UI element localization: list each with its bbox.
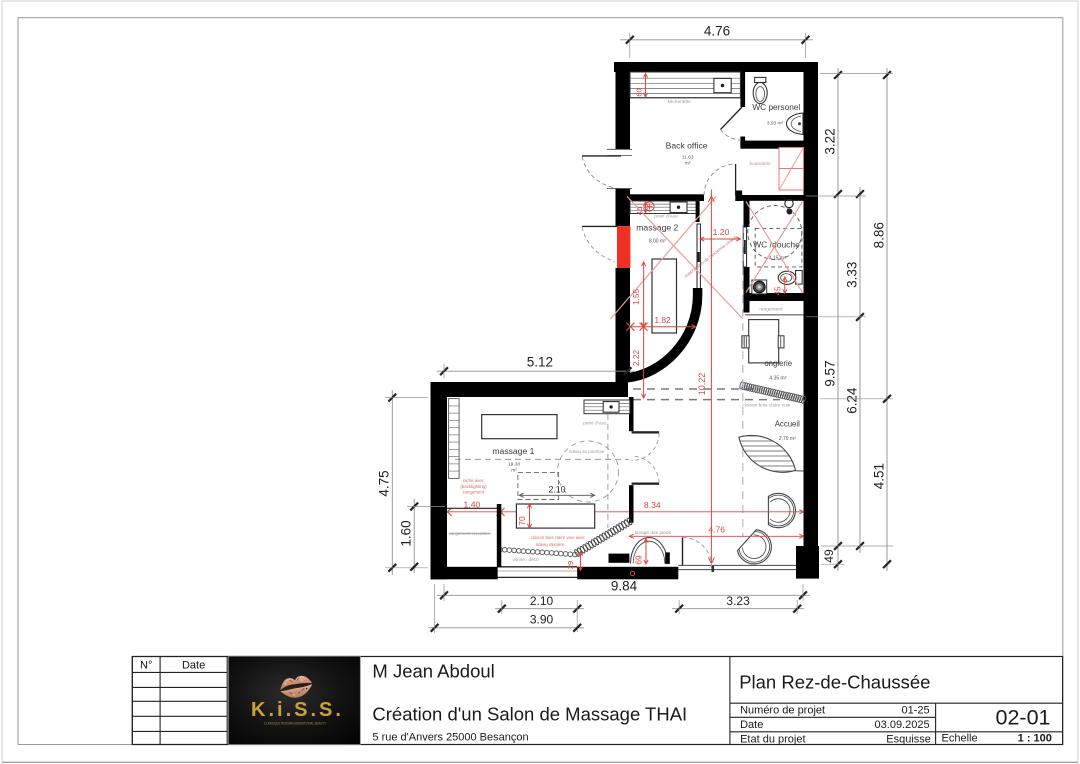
svg-text:WC /douche: WC /douche xyxy=(753,240,800,250)
svg-text:4.35 m²: 4.35 m² xyxy=(769,376,786,382)
svg-text:point d'eau: point d'eau xyxy=(583,420,607,426)
svg-text:rideau derrière: rideau derrière xyxy=(536,542,565,547)
svg-text:11.63: 11.63 xyxy=(682,155,694,161)
svg-text:kitchenette: kitchenette xyxy=(668,99,692,105)
svg-text:Etat du projet: Etat du projet xyxy=(740,733,805,745)
svg-text:6.24: 6.24 xyxy=(845,387,860,414)
svg-text:10.22: 10.22 xyxy=(697,373,707,396)
svg-text:19.38: 19.38 xyxy=(508,462,520,468)
svg-text:5.12: 5.12 xyxy=(527,355,553,370)
svg-text:02-01: 02-01 xyxy=(996,706,1051,730)
svg-text:M Jean Abdoul: M Jean Abdoul xyxy=(372,661,494,682)
svg-text:4.15 m²: 4.15 m² xyxy=(769,256,786,262)
svg-text:onglerie: onglerie xyxy=(764,359,792,368)
svg-text:Accueil: Accueil xyxy=(775,419,800,428)
svg-text:massage 2: massage 2 xyxy=(636,222,678,232)
svg-text:cloison bois claire voie: cloison bois claire voie xyxy=(742,402,790,408)
svg-text:3.23: 3.23 xyxy=(726,594,750,608)
svg-text:8.00 m²: 8.00 m² xyxy=(649,239,666,245)
svg-text:cloison bois claire voie avec: cloison bois claire voie avec xyxy=(531,535,586,540)
svg-text:49: 49 xyxy=(822,549,836,563)
svg-text:Date: Date xyxy=(182,660,205,672)
svg-text:8.34: 8.34 xyxy=(644,500,661,510)
svg-text:3.90: 3.90 xyxy=(530,613,554,627)
svg-text:massage 1: massage 1 xyxy=(492,446,534,456)
svg-text:9.57: 9.57 xyxy=(823,360,838,386)
svg-text:m²: m² xyxy=(511,468,517,474)
svg-text:point d'eau: point d'eau xyxy=(654,213,678,219)
svg-text:2.79 m²: 2.79 m² xyxy=(779,436,796,442)
svg-text:1.82: 1.82 xyxy=(654,315,671,325)
svg-text:45: 45 xyxy=(774,286,783,295)
svg-text:CLASSIQUE RUSSIAN SENSATIONAL: CLASSIQUE RUSSIAN SENSATIONAL BEAUTY xyxy=(264,721,327,725)
svg-text:N°: N° xyxy=(140,660,152,672)
svg-text:Numéro de projet: Numéro de projet xyxy=(740,705,825,717)
svg-text:40: 40 xyxy=(635,207,644,215)
svg-text:rideau au pourtour: rideau au pourtour xyxy=(569,449,605,454)
svg-text:m²: m² xyxy=(685,161,691,167)
svg-text:lavage des pieds: lavage des pieds xyxy=(635,530,672,536)
svg-text:rangement: rangement xyxy=(759,307,783,313)
svg-text:buanderie: buanderie xyxy=(750,161,772,167)
svg-text:Echelle: Echelle xyxy=(942,733,978,745)
svg-text:1 : 100: 1 : 100 xyxy=(1018,733,1052,745)
svg-text:Date: Date xyxy=(740,719,763,731)
svg-text:4.75: 4.75 xyxy=(377,470,392,496)
svg-text:29: 29 xyxy=(566,561,575,569)
svg-text:WC personel: WC personel xyxy=(752,102,800,112)
svg-text:3.93 m²: 3.93 m² xyxy=(767,121,784,127)
svg-text:5 rue d'Anvers 25000 Besançon: 5 rue d'Anvers 25000 Besançon xyxy=(372,732,528,744)
svg-text:3.33: 3.33 xyxy=(845,262,860,288)
svg-text:niche avec: niche avec xyxy=(463,478,485,483)
svg-text:1.60: 1.60 xyxy=(399,520,414,546)
svg-text:03.09.2025: 03.09.2025 xyxy=(875,719,930,731)
svg-text:01-25: 01-25 xyxy=(901,705,929,717)
svg-text:Création d'un Salon de Massage: Création d'un Salon de Massage THAI xyxy=(372,704,687,725)
svg-text:9.84: 9.84 xyxy=(611,579,638,594)
svg-text:4.51: 4.51 xyxy=(872,463,887,489)
svg-text:70: 70 xyxy=(517,516,527,526)
svg-text:Plan Rez-de-Chaussée: Plan Rez-de-Chaussée xyxy=(739,672,930,693)
svg-text:(backlighting): (backlighting) xyxy=(460,484,487,489)
svg-text:rangement: rangement xyxy=(463,490,485,495)
svg-text:1.20: 1.20 xyxy=(713,227,730,237)
svg-text:K.i.S.S.: K.i.S.S. xyxy=(251,699,344,721)
svg-text:Back office: Back office xyxy=(666,141,708,151)
svg-text:2.22: 2.22 xyxy=(631,350,641,367)
svg-text:4.76: 4.76 xyxy=(704,24,730,39)
svg-text:60: 60 xyxy=(635,88,644,96)
svg-text:vitrine / déco: vitrine / déco xyxy=(512,557,538,562)
svg-text:Esquisse: Esquisse xyxy=(886,733,931,745)
svg-text:1.55: 1.55 xyxy=(631,289,641,306)
svg-text:4.76: 4.76 xyxy=(708,524,725,534)
svg-text:2.10: 2.10 xyxy=(548,484,565,494)
svg-text:2.10: 2.10 xyxy=(530,594,554,608)
svg-text:8.86: 8.86 xyxy=(872,222,887,248)
svg-text:69: 69 xyxy=(633,555,643,565)
svg-text:3.22: 3.22 xyxy=(823,128,838,154)
